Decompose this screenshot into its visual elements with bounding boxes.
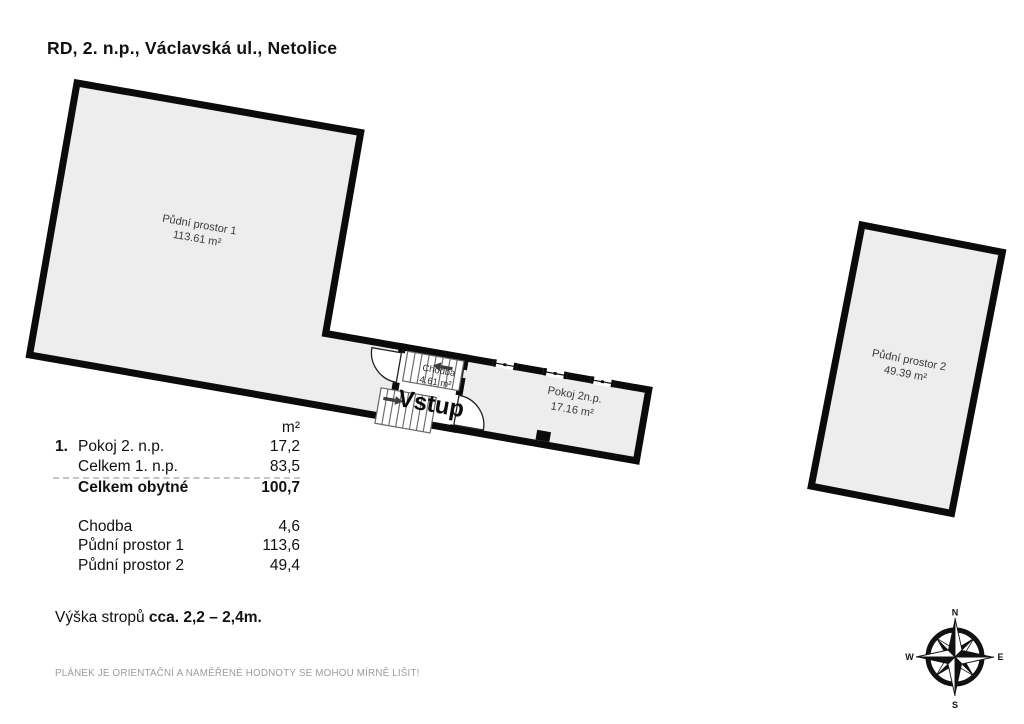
ceiling-note-prefix: Výška stropů	[55, 609, 149, 626]
row-value: 83,5	[270, 458, 300, 476]
table-row: Půdní prostor 1 113,6	[55, 537, 300, 557]
compass-rose: N E S W	[905, 608, 1003, 711]
area-table: m² 1. Pokoj 2. n.p. 17,2 Celkem 1. n.p. …	[55, 418, 300, 576]
row-label: Chodba	[78, 518, 278, 536]
compass-west-label: W	[905, 652, 914, 662]
row-label: Celkem 1. n.p.	[78, 458, 270, 476]
attic2-building: Půdní prostor 2 49.39 m²	[811, 225, 1002, 513]
row-value: 113,6	[262, 537, 300, 555]
row-label: Půdní prostor 2	[78, 557, 270, 575]
row-label: Půdní prostor 1	[78, 537, 262, 555]
table-row: Celkem 1. n.p. 83,5	[55, 457, 300, 477]
ceiling-height-note: Výška stropů cca. 2,2 – 2,4m.	[55, 609, 262, 627]
unit-header: m²	[282, 419, 300, 437]
table-row: Půdní prostor 2 49,4	[55, 556, 300, 576]
compass-south-label: S	[952, 700, 958, 710]
compass-main-points	[916, 618, 994, 696]
row-value: 49,4	[270, 557, 300, 575]
building-outline	[30, 83, 684, 461]
row-value: 17,2	[270, 438, 300, 456]
compass-east-label: E	[997, 652, 1003, 662]
compass-north-label: N	[952, 608, 959, 618]
table-row: Chodba 4,6	[55, 517, 300, 537]
ceiling-note-value: cca. 2,2 – 2,4m.	[149, 609, 262, 626]
row-value: 100,7	[261, 479, 300, 497]
row-label: Pokoj 2. n.p.	[78, 438, 270, 456]
row-value: 4,6	[278, 518, 300, 536]
spacer	[55, 498, 300, 517]
disclaimer-text: PLÁNEK JE ORIENTAČNÍ A NAMĚŘENÉ HODNOTY …	[55, 668, 420, 679]
area-table-header: m²	[55, 418, 300, 438]
row-number: 1.	[55, 438, 78, 456]
table-row-total: Celkem obytné 100,7	[55, 479, 300, 499]
main-building: Půdní prostor 1 113.61 m² Chodba 4.61 m²…	[28, 83, 684, 469]
table-row: 1. Pokoj 2. n.p. 17,2	[55, 438, 300, 458]
row-label: Celkem obytné	[78, 479, 261, 497]
